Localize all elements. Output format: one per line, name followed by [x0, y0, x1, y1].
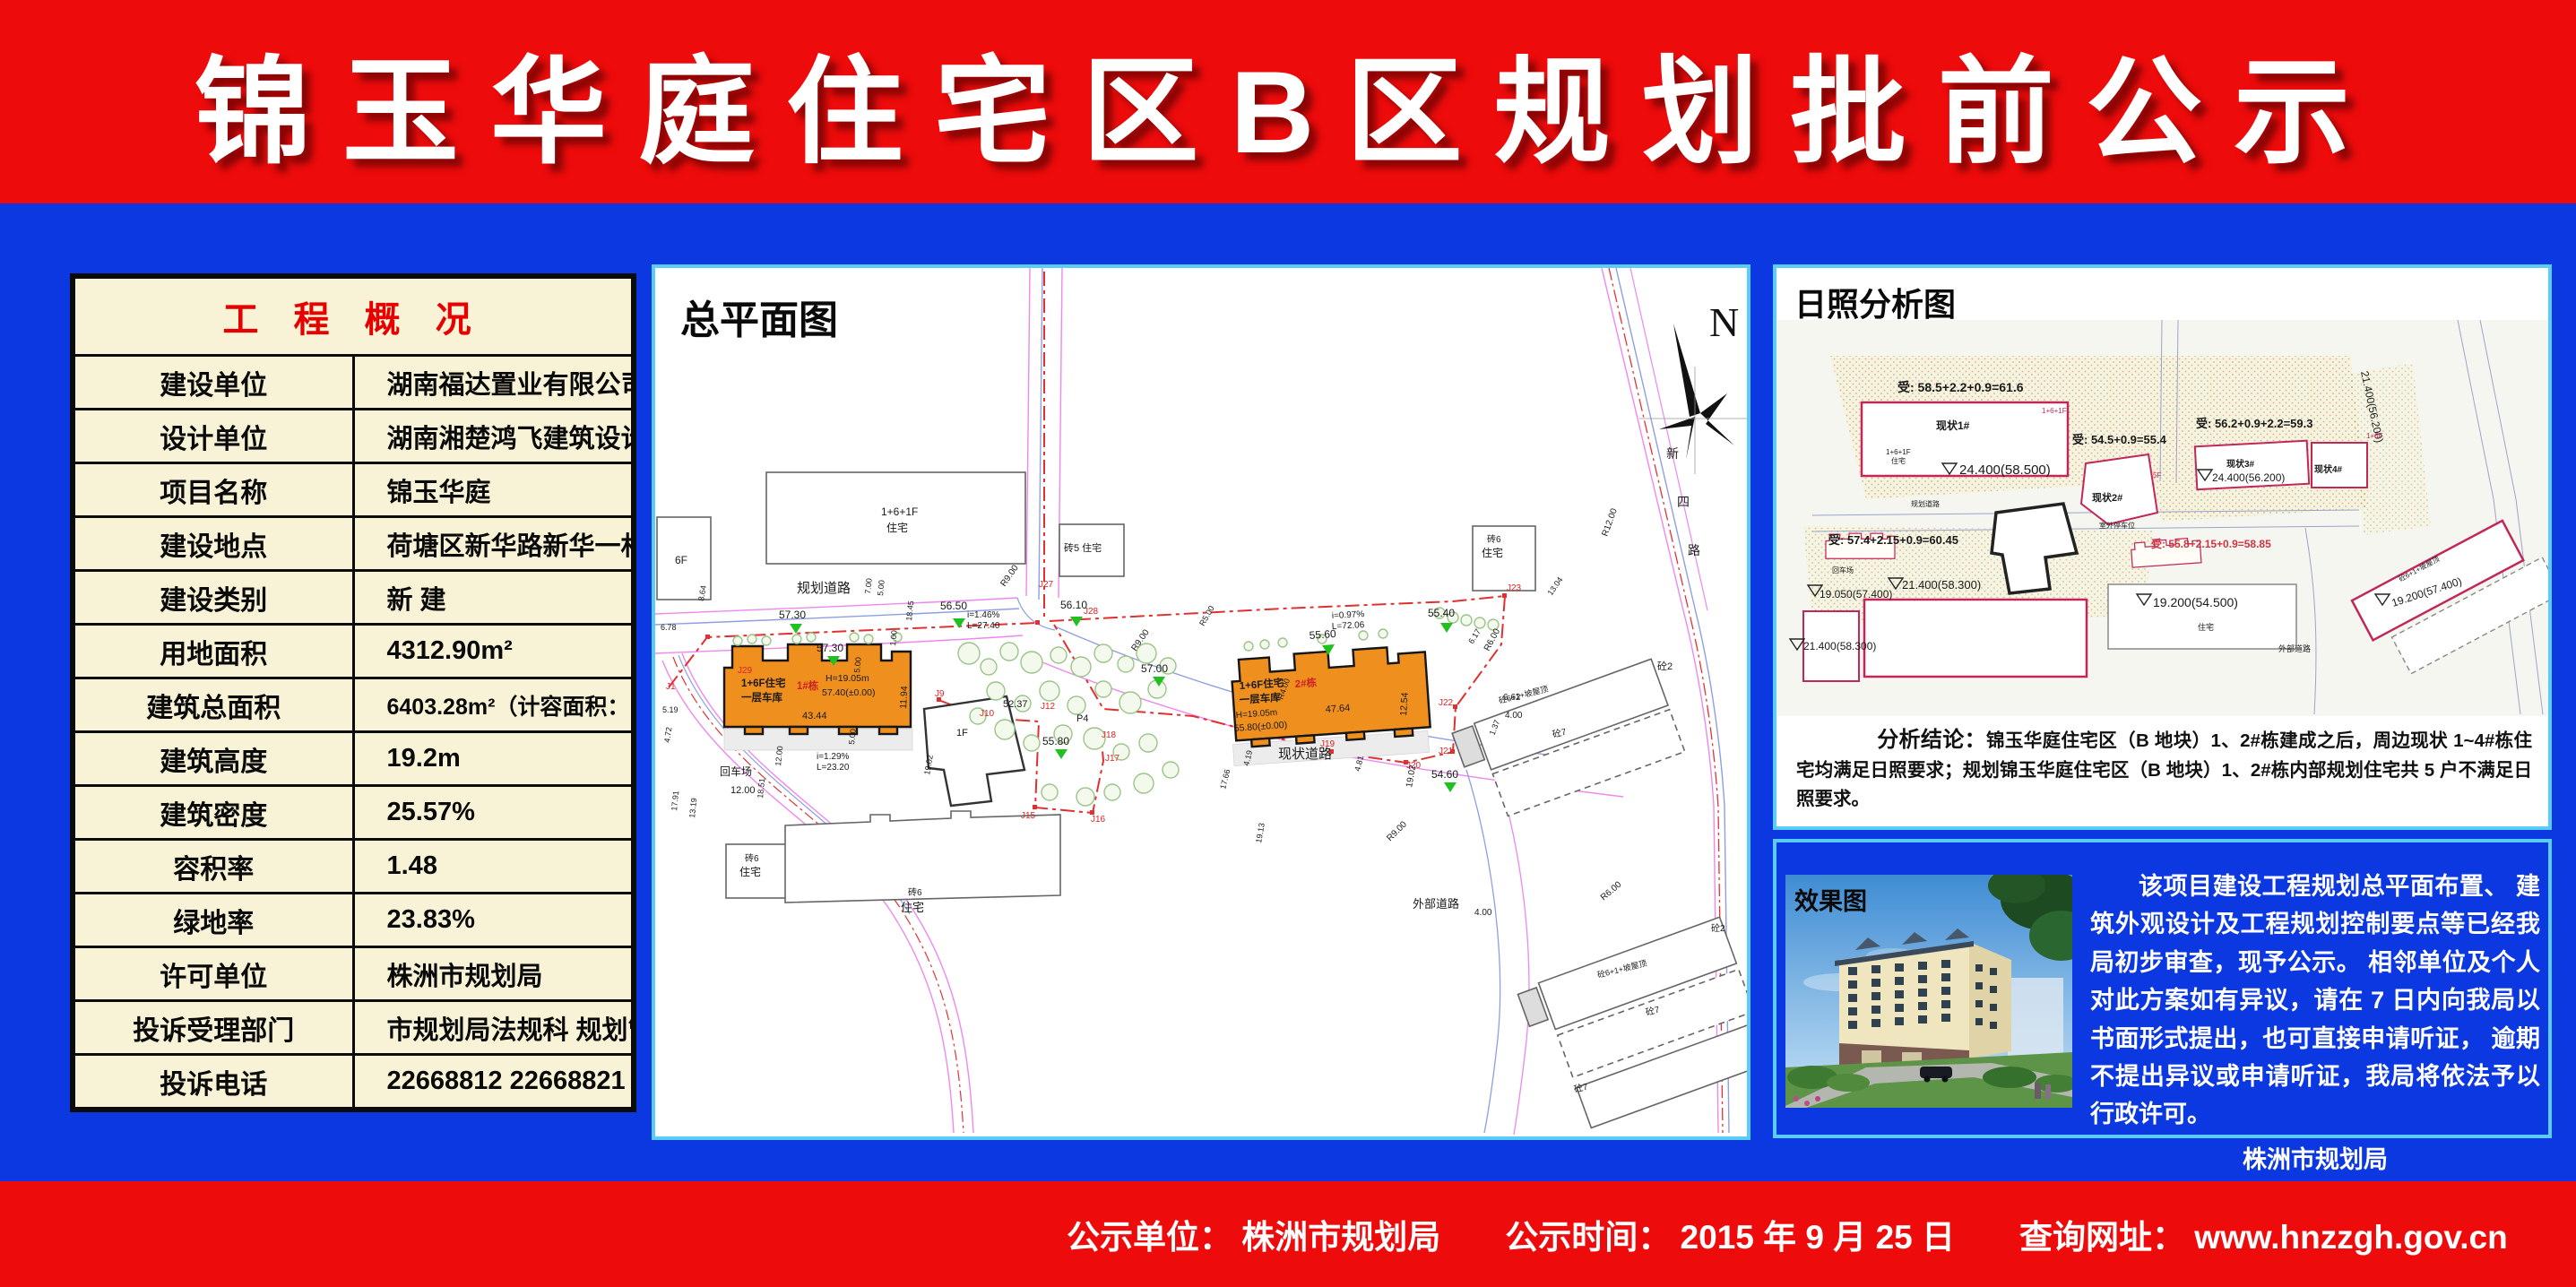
row-value: 1.48: [353, 840, 634, 894]
plan-annotation: 19.02: [922, 754, 935, 775]
plan-annotation: 外部道路: [1413, 897, 1459, 911]
plan-annotation: 住宅: [2198, 622, 2214, 632]
plan-annotation: 新: [1666, 446, 1679, 461]
plan-annotation: 57.30: [779, 609, 806, 621]
table-row: 容积率1.48: [73, 840, 634, 894]
plan-annotation: 现状1#: [1936, 419, 1970, 432]
plan-annotation: P4: [1076, 713, 1088, 724]
analysis-conclusion: 分析结论：锦玉华庭住宅区（B 地块）1、2#栋建成之后，周边现状 1~4#栋住宅…: [1796, 723, 2532, 814]
plan-annotation: 1.00: [888, 630, 899, 646]
plan-annotation: 现状4#: [2314, 463, 2343, 475]
plan-annotation: J15: [1021, 811, 1036, 821]
plan-annotation: 12.54: [1398, 692, 1411, 716]
plan-annotation: 24.400(56.200): [2212, 471, 2285, 484]
plan-annotation: J22: [1439, 698, 1454, 708]
notice-signature: 株洲市规划局: [2090, 1141, 2540, 1179]
plan-annotation: 一层车库: [741, 691, 782, 704]
row-label: 建设类别: [73, 571, 353, 625]
plan-annotation: 路: [1688, 543, 1700, 557]
plan-annotation: 18.45: [904, 600, 915, 621]
plan-annotation: 57.30: [817, 642, 843, 654]
plan-annotation: J9: [935, 689, 945, 699]
plan-annotation: 受: 57.4+2.15+0.9=60.45: [1828, 533, 1958, 547]
plan-annotation: J16: [1091, 815, 1106, 825]
footer-agency: 公示单位： 株洲市规划局: [1067, 1210, 1440, 1258]
plan-annotation: 现状2#: [2092, 491, 2122, 504]
plan-annotation: 受: 58.5+2.2+0.9=61.6: [1897, 380, 2024, 394]
plan-annotation: J29: [738, 666, 753, 676]
plan-annotation: 外部道路: [2278, 643, 2311, 653]
notice-paragraph: 该项目建设工程规划总平面布置、 建筑外观设计及工程规划控制要点等已经我局初步审查…: [2090, 868, 2540, 1134]
plan-annotation: 回车场: [1832, 566, 1854, 574]
plan-annotation: H=19.05m: [826, 673, 869, 684]
plan-annotation: 11.94: [898, 686, 910, 709]
plan-annotation: J19: [1320, 739, 1336, 749]
row-value: 湖南福达置业有限公司: [353, 356, 634, 410]
footer-website[interactable]: 查询网址： www.hnzzgh.gov.cn: [2019, 1210, 2508, 1258]
plan-annotation: 56.50: [940, 600, 967, 612]
north-label: N: [1709, 299, 1739, 345]
plan-annotation: 6.78: [661, 623, 677, 632]
row-value: 19.2m: [353, 732, 634, 786]
plan-annotation: 规划道路: [1911, 499, 1940, 508]
plan-annotation: 砼2: [1711, 922, 1725, 934]
table-row: 项目名称锦玉华庭: [73, 463, 634, 517]
table-row: 建筑总面积6403.28m²（计容面积： 6403.28m²）: [73, 678, 634, 732]
plan-annotation: 55.40: [1428, 607, 1455, 619]
row-label: 投诉电话: [73, 1055, 353, 1110]
plan-annotation: J27: [1039, 580, 1054, 590]
row-label: 容积率: [73, 840, 353, 894]
row-label: 投诉受理部门: [73, 1001, 353, 1055]
row-label: 建筑密度: [73, 786, 353, 840]
plan-annotation: 6F: [675, 554, 687, 566]
plan-annotation: 1+6F住宅: [741, 677, 786, 689]
plan-annotation: 21.400(58.300): [1902, 578, 1981, 592]
plan-annotation: R12.00: [1600, 507, 1620, 538]
plan-annotation: 5.00: [852, 657, 863, 673]
sunshine-drawing: 受: 58.5+2.2+0.9=61.6现状1#1+6+1F住宅1+6+1F24…: [1776, 320, 2548, 716]
plan-annotation: 4.72: [662, 727, 673, 744]
sunshine-title: 日照分析图: [1794, 279, 1956, 325]
plan-annotation: R9.00: [998, 563, 1021, 589]
plan-annotation: 住宅: [901, 901, 924, 914]
plan-annotation: 现状3#: [2226, 458, 2255, 470]
row-value: 市规划局法规科 规划管理二科: [353, 1001, 634, 1055]
plan-annotation: 47.64: [1325, 703, 1350, 715]
plan-annotation: L=27.40: [967, 621, 1000, 631]
row-value: 株洲市规划局: [353, 947, 634, 1001]
plan-annotation: i=1.29%: [817, 752, 850, 762]
table-row: 建设类别新 建: [73, 571, 634, 625]
plan-annotation: 54.60: [1431, 768, 1458, 781]
plan-annotation: 砖5 住宅: [1064, 541, 1102, 554]
table-row: 投诉受理部门市规划局法规科 规划管理二科: [73, 1001, 634, 1055]
plan-annotation: 19.13: [1254, 822, 1266, 843]
plan-annotation: 砼2: [1657, 661, 1673, 672]
plan-annotation: 6.17: [1466, 627, 1482, 645]
plan-annotation: J21: [1439, 747, 1454, 756]
plan-annotation: 17.66: [1218, 768, 1232, 790]
plan-annotation: 4.00: [1505, 711, 1523, 721]
row-value: 荷塘区新华路新华一村旁: [353, 517, 634, 571]
plan-annotation: 1F: [956, 728, 968, 739]
plan-annotation: 57.40(±0.00): [822, 687, 875, 698]
plan-annotation: 5.00: [847, 729, 858, 745]
plan-annotation: 住宅: [886, 521, 908, 534]
plan-annotation: 24.400(58.500): [1959, 462, 2051, 478]
plan-annotation: 受: 54.5+0.9=55.4: [2072, 433, 2167, 446]
plan-annotation: 19.200(54.500): [2153, 595, 2238, 609]
plan-annotation: 19.050(57.400): [1820, 588, 1892, 600]
row-label: 建设地点: [73, 517, 353, 571]
site-plan-title: 总平面图: [680, 288, 838, 345]
plan-annotation: 13.04: [1545, 575, 1564, 597]
footer-time: 公示时间： 2015 年 9 月 25 日: [1505, 1210, 1955, 1258]
plan-annotation: 4.00: [1474, 908, 1492, 918]
plan-annotation: L=23.20: [817, 763, 850, 773]
plan-annotation: 受: 55.8+2.15+0.9=58.85: [2151, 537, 2271, 550]
plan-annotation: J10: [980, 709, 995, 719]
row-value: 6403.28m²（计容面积： 6403.28m²）: [353, 678, 634, 732]
table-row: 投诉电话22668812 22668821: [73, 1055, 634, 1110]
plan-annotation: J23: [1507, 583, 1522, 593]
plan-annotation: 18.51: [756, 778, 766, 799]
plan-annotation: 5F: [2153, 471, 2161, 479]
plan-annotation: J18: [1102, 730, 1117, 740]
page-title: 锦玉华庭住宅区B区规划批前公示: [194, 18, 2382, 186]
plan-annotation: 住宅: [1482, 546, 1503, 559]
plan-annotation: 5.19: [662, 705, 679, 714]
plan-annotation: 规划道路: [797, 581, 851, 596]
existing-buildings-layer: [657, 472, 1747, 1136]
row-value: 22668812 22668821: [353, 1055, 634, 1110]
plan-annotation: 5.00: [876, 580, 886, 596]
plan-annotation: i=1.46%: [967, 610, 1000, 620]
table-row: 建筑高度19.2m: [73, 732, 634, 786]
plan-annotation: 1+6+1F: [881, 505, 918, 518]
table-row: 绿地率23.83%: [73, 894, 634, 947]
row-label: 设计单位: [73, 410, 353, 463]
plan-annotation: 砖6: [908, 886, 922, 898]
table-row: 建设单位湖南福达置业有限公司: [73, 356, 634, 410]
table-row: 设计单位湖南湘楚鸿飞建筑设计有限公司: [73, 410, 634, 463]
plan-annotation: 1#栋: [797, 679, 819, 692]
plan-annotation: L=72.06: [1332, 620, 1365, 632]
plan-annotation: J28: [1084, 607, 1099, 617]
plan-annotation: 7.00: [863, 578, 874, 594]
row-label: 建设单位: [73, 356, 353, 410]
plan-annotation: 住宅: [739, 865, 761, 878]
plan-annotation: R6.00: [1599, 879, 1624, 903]
table-header-row: 工 程 概 况: [73, 276, 634, 356]
plan-annotation: 1+6+1F: [1886, 448, 1911, 456]
plan-annotation: 17.91: [670, 790, 680, 811]
notice-text-block: 该项目建设工程规划总平面布置、 建筑外观设计及工程规划控制要点等已经我局初步审查…: [2090, 868, 2540, 1216]
plan-annotation: 受: 56.2+0.9+2.2=59.3: [2196, 417, 2312, 430]
table-title: 工 程 概 况: [73, 276, 634, 356]
row-label: 建筑高度: [73, 732, 353, 786]
project-overview-table: 工 程 概 况 建设单位湖南福达置业有限公司 设计单位湖南湘楚鸿飞建筑设计有限公…: [70, 273, 636, 1112]
table-row: 建筑密度25.57%: [73, 786, 634, 840]
row-label: 建筑总面积: [73, 678, 353, 732]
plan-annotation: R5.00: [1197, 604, 1216, 627]
plan-annotation: J1: [666, 682, 676, 692]
rendering-label: 效果图: [1794, 882, 1867, 917]
announcement-board: 锦玉华庭住宅区B区规划批前公示 工 程 概 况 建设单位湖南福达置业有限公司 设…: [0, 0, 2576, 1287]
conclusion-label: 分析结论：: [1877, 728, 1986, 752]
row-value: 23.83%: [353, 894, 634, 947]
plan-annotation: 回车场: [720, 764, 752, 778]
sunshine-panel: 日照分析图: [1773, 264, 2552, 830]
footer-bar: 公示单位： 株洲市规划局 公示时间： 2015 年 9 月 25 日 查询网址：…: [0, 1181, 2576, 1287]
plan-annotation: 12.00: [774, 746, 784, 766]
plan-annotation: 13.19: [687, 798, 698, 818]
plan-annotation: 四: [1677, 495, 1690, 509]
row-value: 新 建: [353, 571, 634, 625]
banner: 锦玉华庭住宅区B区规划批前公示: [0, 0, 2576, 203]
notice-panel: 效果图 该项目建设工程规划总平面布置、 建筑外观设计及工程规划控制要点等已经我局…: [1773, 839, 2552, 1138]
plan-annotation: J17: [1105, 754, 1120, 764]
row-value: 4312.90m²: [353, 625, 634, 678]
plan-annotation: 21.400(58.300): [1803, 640, 1876, 652]
plan-annotation: 室外停车位: [2099, 521, 2135, 530]
plan-annotation: 1+6F: [2366, 432, 2383, 440]
plan-annotation: 砖6: [745, 852, 759, 864]
plan-annotation: 52.37: [1003, 699, 1028, 710]
plan-annotation: 55.80: [1042, 735, 1069, 747]
table-row: 建设地点荷塘区新华路新华一村旁: [73, 517, 634, 571]
row-label: 项目名称: [73, 463, 353, 517]
plan-annotation: 12.00: [730, 785, 756, 796]
plan-annotation: 57.00: [1141, 662, 1168, 675]
row-label: 绿地率: [73, 894, 353, 947]
plan-annotation: i=0.97%: [1332, 609, 1365, 621]
row-value: 25.57%: [353, 786, 634, 840]
site-plan-panel: 总平面图: [652, 264, 1750, 1140]
table-row: 用地面积4312.90m²: [73, 625, 634, 678]
plan-annotation: 砖6: [1487, 533, 1501, 545]
plan-annotation: R9.00: [1385, 819, 1409, 843]
row-label: 用地面积: [73, 625, 353, 678]
plan-annotation: J12: [1041, 702, 1056, 712]
row-value: 湖南湘楚鸿飞建筑设计有限公司: [353, 410, 634, 463]
site-plan-drawing: N 规划道路现状道路外部道路新四路回车场12.001+6F住宅一层车库1#栋H=…: [655, 268, 1747, 1136]
footer-row: 公示单位： 株洲市规划局 公示时间： 2015 年 9 月 25 日 查询网址：…: [1067, 1181, 2508, 1287]
plan-annotation: 住宅: [1891, 456, 1906, 465]
north-compass-icon: [1639, 324, 1747, 474]
plan-annotation: R6.00: [1482, 626, 1502, 652]
plan-annotation: 1+6+1F: [2042, 407, 2067, 415]
table-row: 许可单位株洲市规划局: [73, 947, 634, 1001]
plan-annotation: 43.44: [802, 711, 827, 721]
row-value: 锦玉华庭: [353, 463, 634, 517]
row-label: 许可单位: [73, 947, 353, 1001]
